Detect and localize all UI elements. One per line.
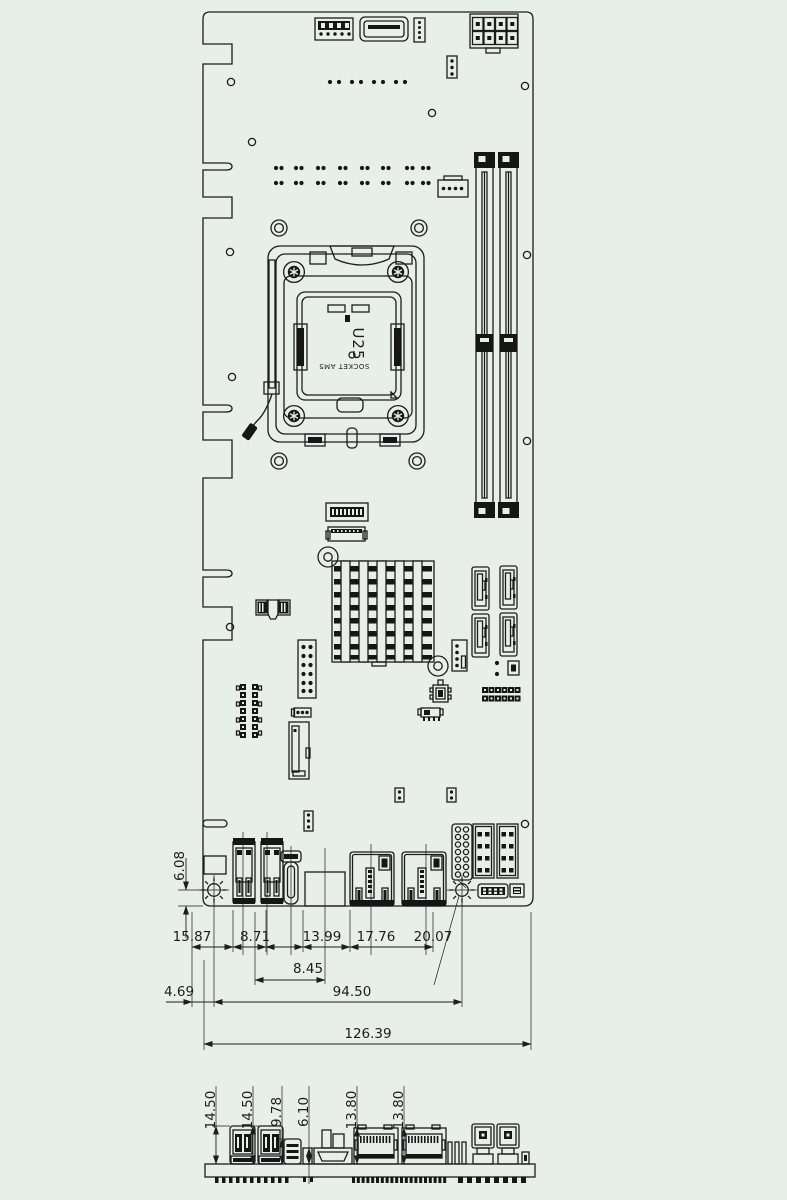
socket-latch-left: REMOVE [294,324,307,370]
socket-standoff-4 [409,453,425,469]
side-right-parts [522,1152,529,1164]
edge-slot [203,820,227,827]
solder-dots-row-top [328,80,407,84]
usb3-internal-header-2 [497,824,518,878]
solder-dots-rows-mid [274,166,431,185]
dp-connector-1 [233,838,255,904]
pcb-edge-profile [205,1164,535,1177]
header-2x5 [478,884,508,898]
socket-name-text: SOCKET AM5 [319,362,370,370]
cpu-socket-assembly: REMOVE REMOVE U25 SOCKET AM5 [241,220,427,469]
fpc-connector [326,527,367,541]
dim-text-8-71: 8.71 [240,929,270,945]
socket-body [297,292,401,412]
socket-screw-4 [388,406,409,427]
socket-standoff-3 [271,453,287,469]
dim-text-126-39: 126.39 [344,1026,391,1042]
side-rj45-2 [402,1125,446,1164]
side-usb-1 [472,1124,494,1164]
fan-header [438,176,468,197]
socket-standoff-1 [271,220,287,236]
header-4pin-sata [452,640,467,671]
side-solder-tails [215,1177,526,1183]
socket-latch-left-label: REMOVE [298,337,304,356]
sata-connector-3 [472,614,489,657]
dim-text-8-45: 8.45 [293,961,323,977]
side-view: 14.50 14.50 9.78 6.10 13.80 13.80 [203,1086,535,1184]
side-dim-text-3: 9.78 [269,1097,285,1127]
usb-pin-header-top [315,18,353,40]
tact-switch [430,680,451,702]
dim-text-15-87: 15.87 [173,929,212,945]
header-3pin-top [447,56,457,78]
side-dp-2 [258,1126,283,1164]
m2-connector-key [256,600,290,619]
slimline-connector [360,17,408,41]
solder-dots-sata [495,661,519,676]
jumper-2pin-2 [447,788,456,802]
socket-screw-1 [284,262,305,283]
box-header-vertical [298,640,316,698]
usb-stack-1 [350,852,394,906]
dimm-slot-2 [498,152,519,518]
jumper-2pin-1 [395,788,404,802]
header-3pin-mid [292,708,312,717]
socket-latch-right-label: REMOVE [394,337,400,356]
header-2x6 [482,687,521,702]
dim-text-4-69: 4.69 [164,984,194,1000]
atx-power-connector [470,14,518,53]
side-hdmi [314,1130,352,1164]
side-audio-jack [284,1139,301,1164]
side-small-part [303,1148,312,1164]
side-dim-text-1: 14.50 [203,1091,219,1130]
side-dim-text-4: 6.10 [296,1097,312,1127]
usb-stack-2 [402,852,446,906]
sata-connector-1 [472,567,489,610]
socket-standoff-2 [411,220,427,236]
socket-screw-2 [388,262,409,283]
dim-chain-row: 15.87 8.71 13.99 17.76 20.07 [173,929,453,947]
socket-designator-text: U25 [349,327,367,360]
slide-switch [418,708,443,721]
io-connector-small [510,884,524,897]
side-dim-text-2: 14.50 [240,1091,256,1130]
dim-text-13-99: 13.99 [303,929,342,945]
side-dim-text-6: 13.80 [391,1091,407,1130]
side-pin-group [448,1142,466,1164]
socket-latch-right: REMOVE [391,324,404,370]
dim-4-69-94-50: 4.69 94.50 [164,984,462,1002]
dim-8-45: 8.45 [255,961,325,980]
dim-text-6-08: 6.08 [172,851,188,881]
side-dim-text-5: 13.80 [344,1091,360,1130]
dp-connector-2 [261,838,283,904]
sata-connector-4 [500,613,517,656]
box-header-mid [326,503,368,521]
dimm-slot-1 [474,152,495,518]
edge-notch [204,856,226,874]
pin-header-2x7 [237,684,262,738]
side-rj45-1 [354,1125,398,1164]
socket-lever [241,260,279,441]
socket-bottom-latches [305,428,400,448]
header-4pin-top [414,18,425,42]
side-usb-2 [497,1124,519,1164]
m2-slot [289,722,310,779]
usb3-internal-header-1 [473,824,494,878]
dim-text-94-50: 94.50 [333,984,372,1000]
heatsink-ear-hole-1 [318,547,338,567]
jumper-3pin [304,811,313,831]
dim-text-17-76: 17.76 [357,929,396,945]
sata-connector-2 [500,566,517,609]
chipset-heatsink [318,547,448,676]
mechanical-drawing-canvas: REMOVE REMOVE U25 SOCKET AM5 [0,0,787,1200]
dim-overall: 126.39 [204,1026,531,1044]
dim-text-20-07: 20.07 [414,929,453,945]
side-dp-1 [230,1126,255,1164]
